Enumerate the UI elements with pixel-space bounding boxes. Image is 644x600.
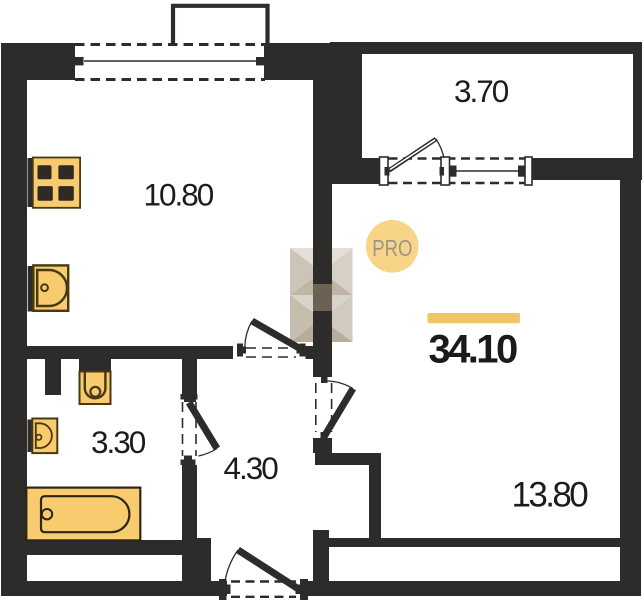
svg-text:3.30: 3.30 bbox=[91, 424, 146, 460]
svg-text:34.10: 34.10 bbox=[429, 328, 517, 372]
svg-text:3.70: 3.70 bbox=[454, 73, 509, 109]
svg-text:PRO: PRO bbox=[372, 235, 412, 261]
svg-text:4.30: 4.30 bbox=[224, 450, 279, 486]
svg-text:13.80: 13.80 bbox=[512, 476, 589, 515]
svg-text:10.80: 10.80 bbox=[144, 177, 214, 213]
